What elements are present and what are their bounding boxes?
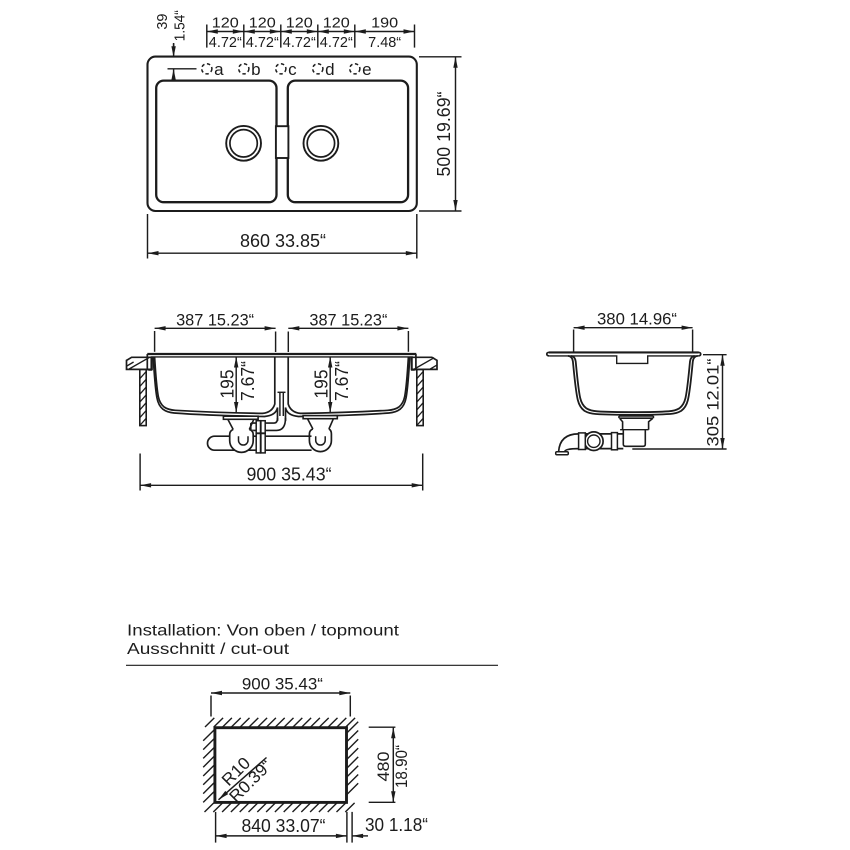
svg-text:480: 480 [374,752,393,782]
svg-text:18.90“: 18.90“ [392,745,411,788]
svg-text:4.72“: 4.72“ [320,34,353,51]
svg-text:120: 120 [212,15,239,32]
svg-text:e: e [362,60,371,79]
svg-text:7.67“: 7.67“ [238,361,258,401]
svg-text:30 1.18“: 30 1.18“ [365,815,428,835]
svg-text:7.48“: 7.48“ [368,34,401,51]
svg-text:Ausschnitt / cut-out: Ausschnitt / cut-out [127,641,290,658]
svg-text:380 14.96“: 380 14.96“ [597,309,677,328]
svg-text:4.72“: 4.72“ [209,34,242,51]
svg-text:190: 190 [371,15,398,32]
svg-text:120: 120 [323,15,350,32]
svg-text:900 35.43“: 900 35.43“ [247,465,332,485]
svg-text:860 33.85“: 860 33.85“ [240,231,326,251]
svg-text:b: b [251,60,260,79]
svg-text:4.72“: 4.72“ [246,34,279,51]
svg-text:c: c [288,60,297,79]
svg-text:4.72“: 4.72“ [283,34,316,51]
svg-text:387 15.23“: 387 15.23“ [309,311,387,330]
svg-text:840 33.07“: 840 33.07“ [242,816,326,836]
svg-text:387 15.23“: 387 15.23“ [176,311,254,330]
svg-text:7.67“: 7.67“ [332,361,352,401]
svg-text:305 12.01“: 305 12.01“ [704,358,723,446]
svg-text:120: 120 [249,15,276,32]
svg-text:500 19.69“: 500 19.69“ [434,92,454,177]
svg-text:195: 195 [312,370,332,399]
svg-text:120: 120 [286,15,313,32]
svg-text:195: 195 [218,370,238,399]
svg-text:39: 39 [154,14,171,30]
svg-text:900 35.43“: 900 35.43“ [242,674,323,693]
svg-text:a: a [214,60,224,79]
svg-text:1.54“: 1.54“ [172,10,189,41]
svg-text:d: d [325,60,334,79]
svg-text:Installation: Von oben / topmo: Installation: Von oben / topmount [127,623,400,640]
